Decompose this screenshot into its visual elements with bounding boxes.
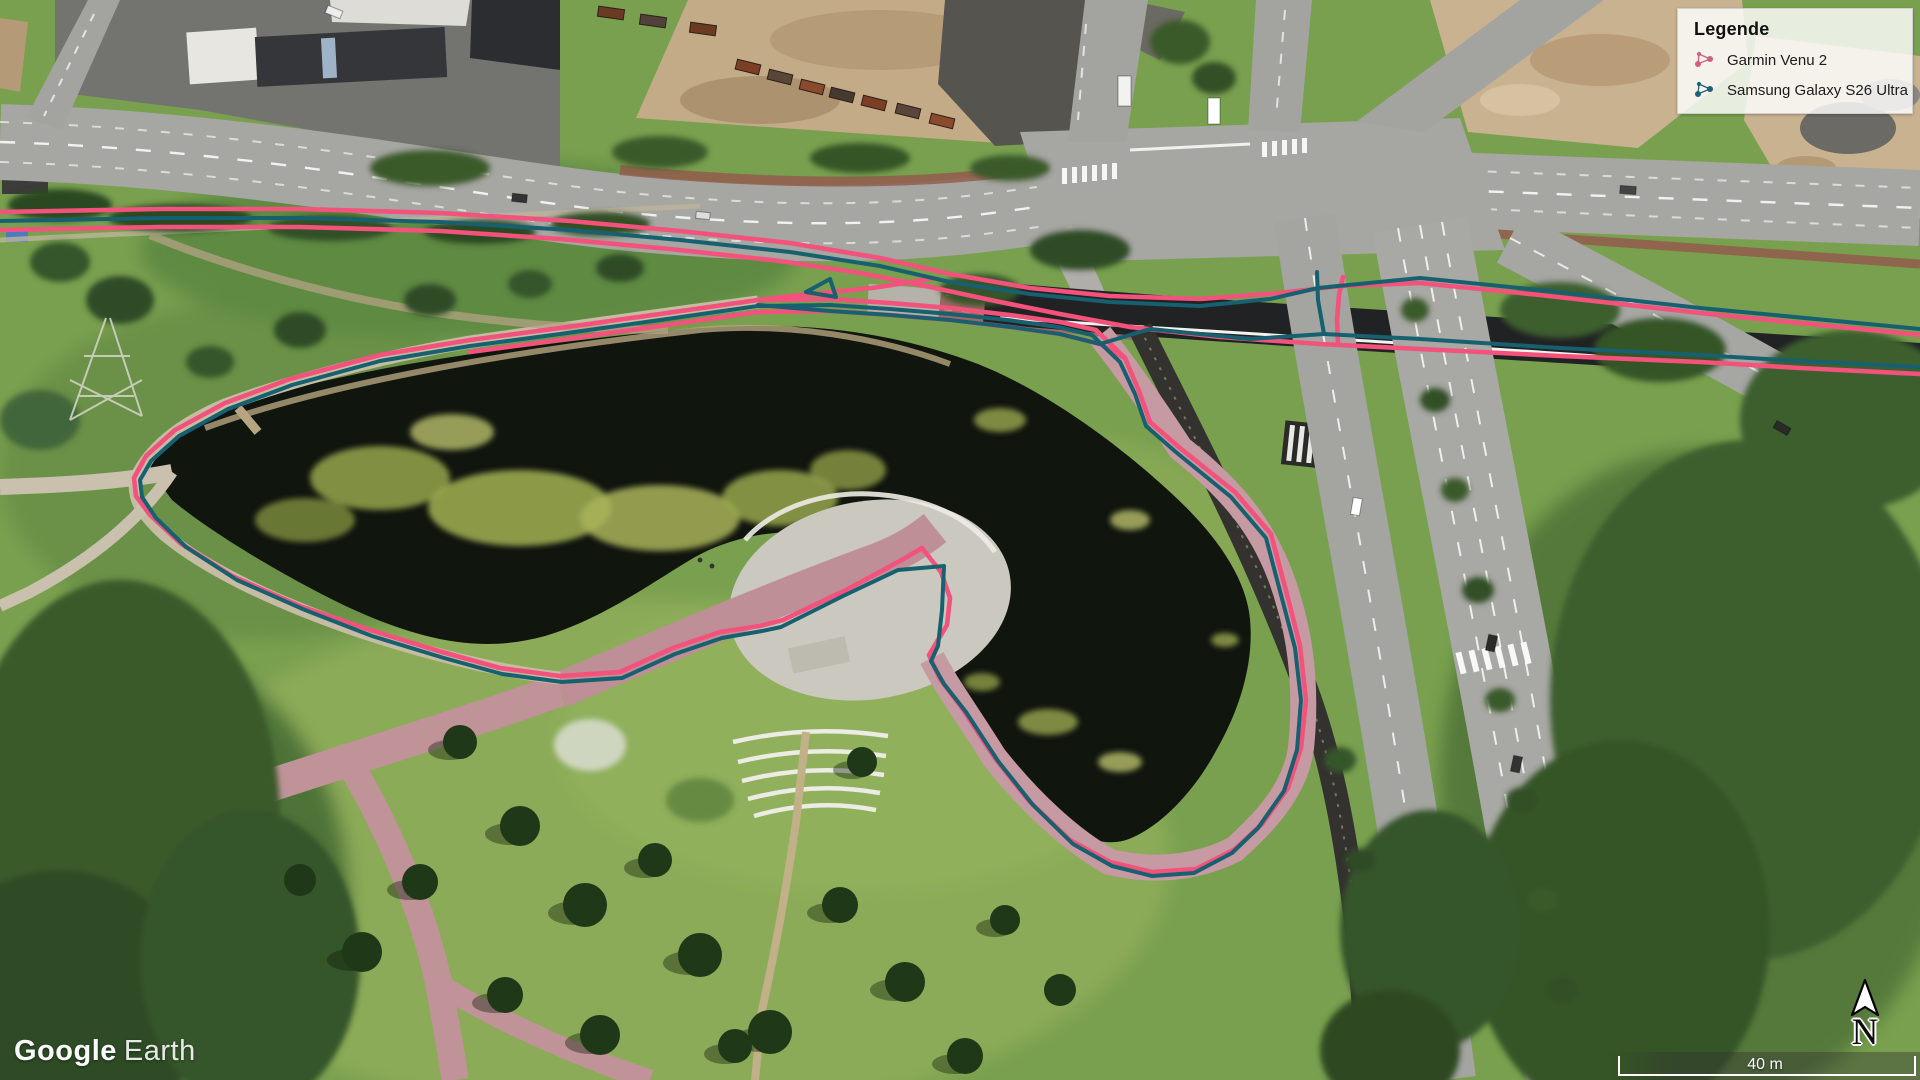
aerial-imagery (0, 0, 1920, 1080)
north-letter: N (1836, 1017, 1894, 1048)
google-earth-map-view[interactable]: Legende Garmin Venu 2 Samsung Galaxy S26… (0, 0, 1920, 1080)
legend-item-garmin: Garmin Venu 2 (1694, 49, 1900, 71)
watermark-product: Earth (124, 1035, 196, 1067)
watermark-brand: Google (14, 1035, 117, 1067)
legend-title: Legende (1694, 19, 1900, 40)
scale-bar: 40 m (1610, 1052, 1920, 1080)
legend-item-label: Samsung Galaxy S26 Ultra (1727, 82, 1908, 99)
north-indicator: N (1836, 979, 1894, 1048)
track-glyph-icon (1694, 49, 1716, 71)
google-earth-watermark: GoogleEarth (14, 1035, 196, 1068)
legend-item-samsung: Samsung Galaxy S26 Ultra (1694, 79, 1900, 101)
legend-panel: Legende Garmin Venu 2 Samsung Galaxy S26… (1677, 8, 1913, 114)
track-glyph-icon (1694, 79, 1716, 101)
scale-bar-label: 40 m (1610, 1056, 1920, 1074)
north-arrow-icon (1849, 979, 1881, 1017)
legend-item-label: Garmin Venu 2 (1727, 52, 1827, 69)
